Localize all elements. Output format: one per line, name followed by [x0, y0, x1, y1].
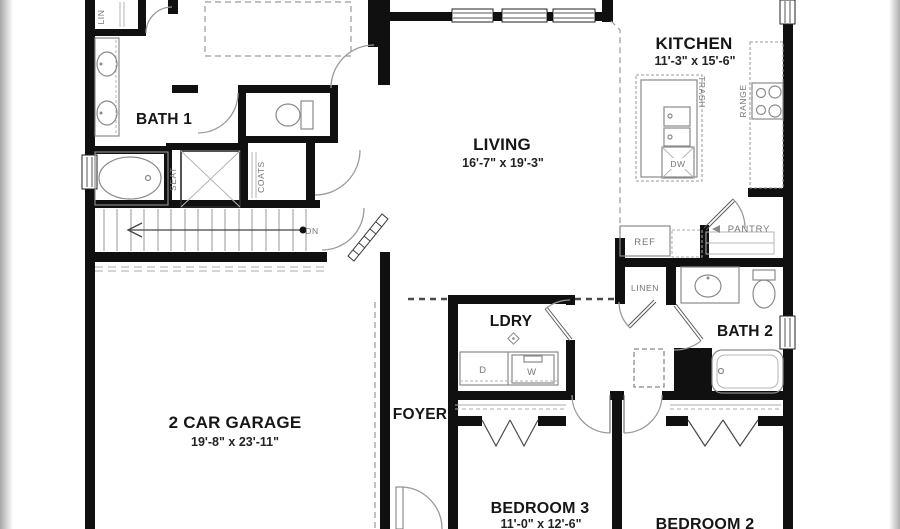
window [780, 316, 795, 349]
laundry-door [545, 300, 572, 341]
linen-small-label: LIN [96, 9, 106, 24]
window [502, 9, 547, 22]
range-label: RANGE [738, 84, 748, 117]
bath2-door [674, 304, 703, 350]
dryer-label: D [479, 365, 487, 376]
vanity [681, 267, 739, 303]
coats-label: COATS [256, 161, 266, 193]
toilet [753, 270, 775, 308]
window [553, 9, 595, 22]
linen-hall-label: LINEN [631, 283, 659, 293]
left-edge-shadow [0, 0, 13, 529]
living-label: LIVING [473, 135, 531, 154]
laundry-label: LDRY [490, 313, 533, 330]
seat-label: SEAT [168, 167, 178, 191]
pantry-shelves [706, 232, 774, 254]
laundry-fixtures [460, 333, 558, 385]
bedroom3-label: BEDROOM 3 [491, 500, 590, 517]
toilet [276, 101, 313, 129]
bifold [482, 420, 510, 446]
bedroom1-door-arc [331, 45, 374, 88]
bathtub [95, 152, 168, 205]
stairs-down-label: DN [305, 226, 318, 236]
range [752, 83, 783, 119]
interior-walls [85, 0, 793, 529]
bifold [688, 420, 723, 446]
bedroom2-door [624, 395, 662, 433]
floor-plan: DN [0, 0, 900, 529]
bath1-label: BATH 1 [136, 111, 192, 128]
bedroom2-label: BEDROOM 2 [656, 516, 755, 529]
right-edge-shadow [889, 0, 900, 529]
stairs: DN [104, 209, 319, 251]
double-vanity [95, 38, 119, 136]
garage-dims: 19'-8" x 23'-11" [191, 435, 279, 449]
bath2-label: BATH 2 [717, 323, 773, 340]
trash-label: TRASH [697, 76, 707, 108]
foyer-label: FOYER [393, 406, 447, 423]
island [636, 75, 702, 181]
bifold [723, 420, 758, 446]
pantry-label: PANTRY [728, 224, 770, 235]
doors [146, 7, 745, 529]
linen-closet-small [120, 2, 124, 27]
ceiling-break-dashed [205, 2, 351, 56]
front-door [396, 487, 442, 529]
bedroom3-dims: 11'-0" x 12'-6" [500, 517, 581, 529]
counter [672, 230, 702, 257]
kitchen-open-boundary [611, 21, 620, 233]
garage-label: 2 CAR GARAGE [169, 413, 302, 432]
shower [181, 151, 240, 207]
hall-linen-door [619, 300, 656, 328]
ceiling-fixture-symbol [508, 333, 519, 344]
bedroom3-door [572, 395, 610, 433]
water-closet-door-arc [198, 93, 238, 133]
floor-plan-image: DN [0, 0, 900, 529]
refrigerator-label: REF [634, 237, 655, 248]
kitchen-dims: 11'-3" x 15'-6" [654, 54, 735, 68]
kitchen-label: KITCHEN [656, 34, 733, 53]
range-counter [750, 42, 783, 188]
washer-label: W [527, 367, 537, 378]
attic-access [634, 349, 664, 387]
bathtub [712, 350, 783, 393]
coats-door-arc [315, 150, 360, 195]
window [452, 9, 493, 22]
window [780, 0, 795, 24]
dishwasher-label: DW [670, 159, 685, 169]
bifold [510, 420, 538, 446]
living-dims: 16'-7" x 19'-3" [462, 156, 544, 170]
